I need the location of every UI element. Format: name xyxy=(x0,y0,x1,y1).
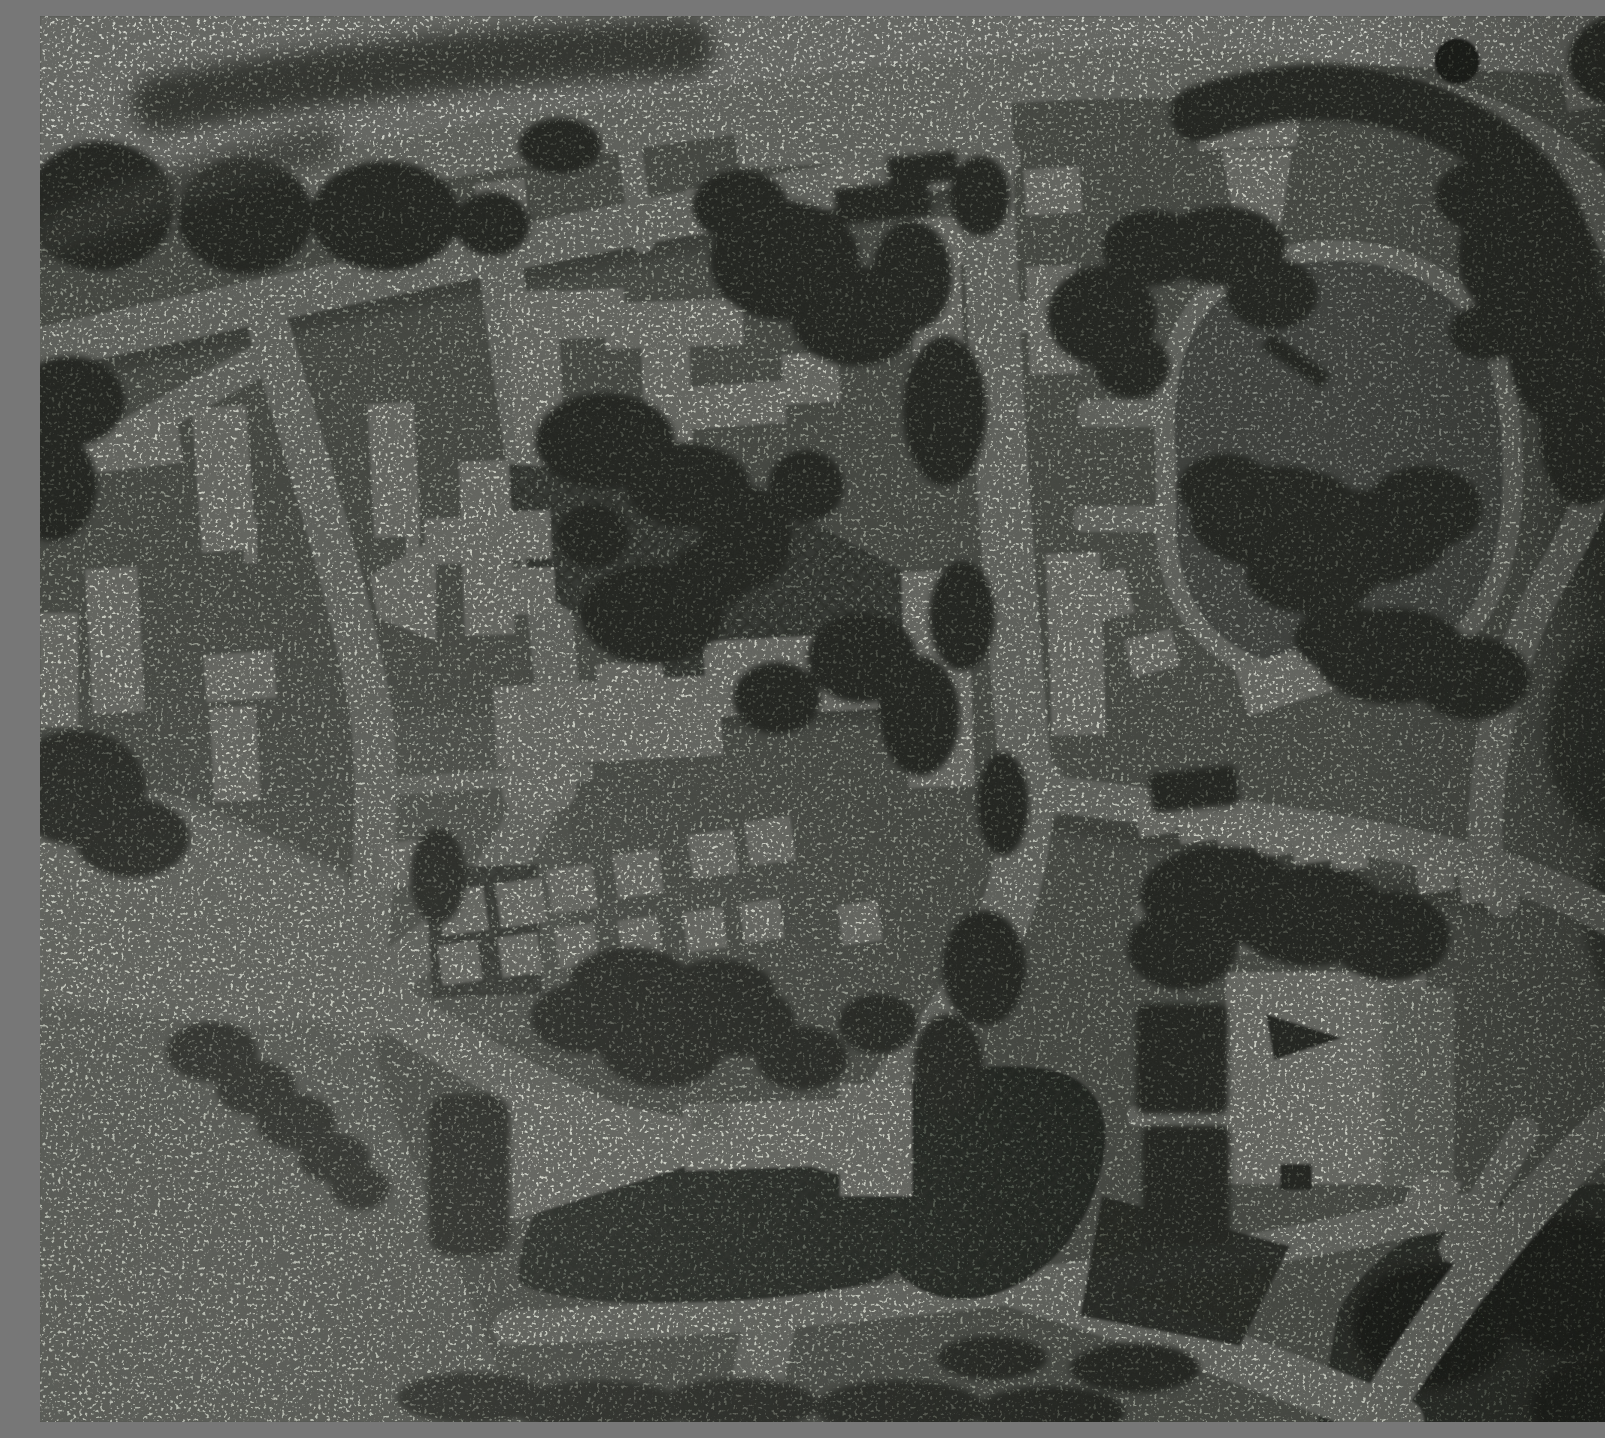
halftone-aerial-photo xyxy=(40,16,1605,1422)
plan-model-scene xyxy=(40,16,1605,1422)
speckle-overlay xyxy=(40,16,1605,1422)
